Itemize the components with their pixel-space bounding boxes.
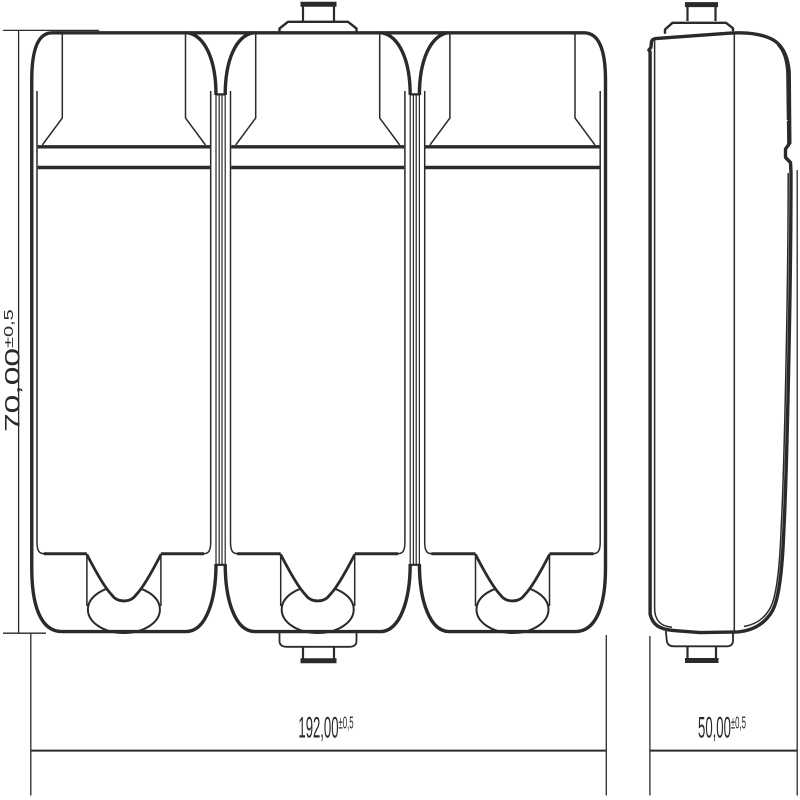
side-inner-lines xyxy=(655,32,790,632)
module-2-top-left-corner xyxy=(225,33,253,95)
front-top-tab xyxy=(280,4,357,33)
side-view xyxy=(649,5,791,661)
depth-extension-lines xyxy=(650,170,797,796)
width-dimension-label: 192,00±0,5 xyxy=(298,710,353,744)
front-view xyxy=(32,4,606,661)
front-bottom-tab xyxy=(280,632,357,661)
module-1-inner xyxy=(37,33,211,633)
module-gap-strips xyxy=(216,95,419,564)
module-gap-caps xyxy=(216,94,419,564)
drawing-canvas: 192,00±0,5 50,00±0,5 70,00±0,5 xyxy=(0,0,800,800)
technical-drawing: 192,00±0,5 50,00±0,5 70,00±0,5 xyxy=(0,0,800,800)
side-bottom-tab xyxy=(666,631,733,661)
depth-dimension-label: 50,00±0,5 xyxy=(698,710,746,744)
module-1-top-right-corner xyxy=(188,33,216,95)
height-dimension-label: 70,00±0,5 xyxy=(0,309,24,432)
side-outline xyxy=(649,33,791,633)
side-top-tab xyxy=(665,5,733,34)
module-2-inner xyxy=(231,33,405,633)
module-3-top-left-corner xyxy=(419,33,447,95)
module-2-top-right-corner xyxy=(382,33,410,95)
dimension-labels: 192,00±0,5 50,00±0,5 70,00±0,5 xyxy=(0,309,746,744)
module-3-inner xyxy=(425,33,601,633)
height-extension-lines xyxy=(3,30,99,633)
